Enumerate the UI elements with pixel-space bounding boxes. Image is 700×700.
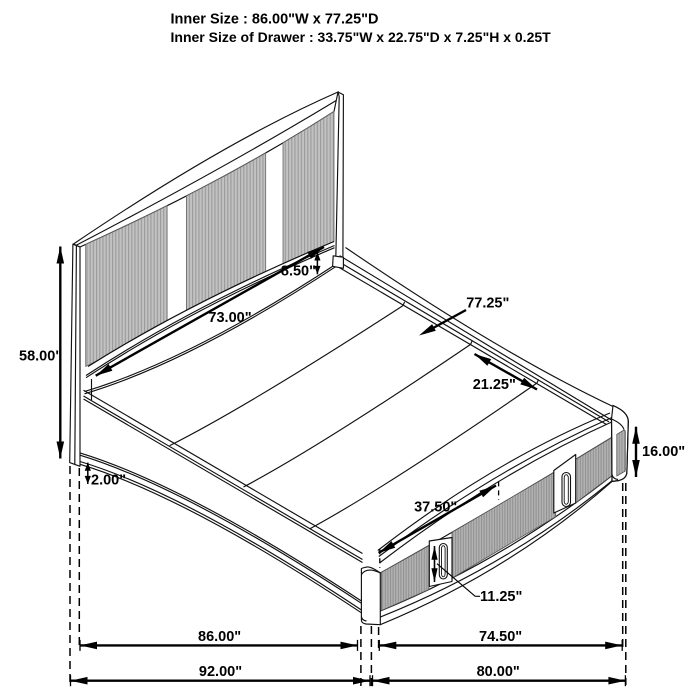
- svg-text:92.00": 92.00": [199, 664, 242, 680]
- svg-text:73.00": 73.00": [208, 310, 251, 326]
- svg-text:2.00": 2.00": [91, 473, 126, 489]
- svg-text:74.50": 74.50": [479, 629, 522, 645]
- svg-text:37.50": 37.50": [414, 500, 457, 516]
- svg-text:Inner Size of Drawer : 33.75"W: Inner Size of Drawer : 33.75"W x 22.75"D…: [171, 29, 552, 45]
- svg-text:11.25": 11.25": [480, 589, 522, 605]
- svg-text:80.00": 80.00": [477, 664, 520, 680]
- svg-text:Inner Size : 86.00"W x 77.25"D: Inner Size : 86.00"W x 77.25"D: [171, 12, 379, 28]
- svg-text:77.25": 77.25": [466, 296, 509, 312]
- svg-text:58.00": 58.00": [19, 349, 62, 365]
- svg-text:21.25": 21.25": [473, 377, 516, 393]
- svg-text:8.50": 8.50": [281, 264, 316, 280]
- svg-text:86.00": 86.00": [198, 629, 241, 645]
- svg-text:16.00": 16.00": [642, 444, 685, 460]
